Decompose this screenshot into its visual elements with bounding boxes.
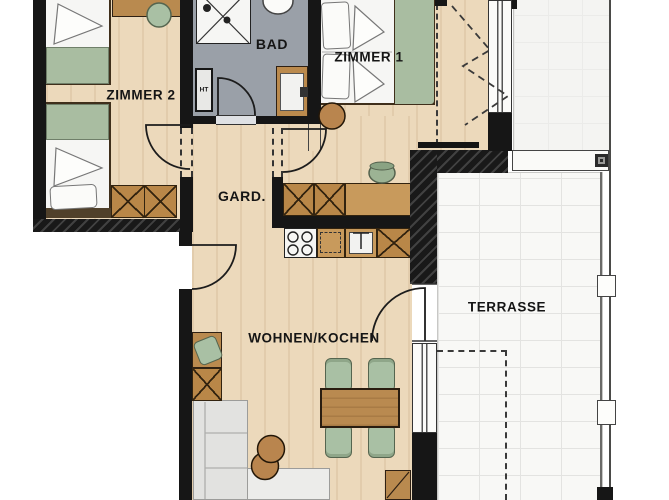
room-label-wohnen-kochen: WOHNEN/KOCHEN	[248, 331, 380, 346]
lowboard-diagonal	[387, 472, 409, 498]
label-ht-shaft: HT	[200, 87, 209, 94]
entry-door-swing	[192, 245, 236, 289]
zimmer1-stool	[319, 103, 345, 129]
bath-faucet-icon	[300, 87, 308, 97]
sofa-seams	[205, 402, 247, 499]
bath-door-swing	[218, 78, 255, 115]
shower-icon	[197, 0, 249, 43]
zimmer1-sliding-door	[418, 142, 479, 148]
stove-burners-icon	[288, 232, 312, 255]
room-label-zimmer2: ZIMMER 2	[106, 88, 175, 103]
plant-icon	[369, 162, 395, 183]
bed-fold-corners	[54, 4, 384, 186]
room-label-terrasse: TERRASSE	[468, 300, 546, 315]
room-label-zimmer1: ZIMMER 1	[334, 50, 403, 65]
zimmer2-desk-chair	[147, 3, 171, 27]
terrace-door-swing	[372, 288, 425, 341]
detail-overlay	[0, 0, 669, 500]
pouf	[258, 436, 285, 463]
kitchen-faucet-icon	[353, 233, 369, 249]
room-label-bad: BAD	[256, 36, 288, 52]
room-label-gard: GARD.	[218, 188, 266, 204]
window-opening-dashes	[452, 6, 508, 125]
toilet-icon	[263, 0, 293, 14]
zimmer2-door-swing	[146, 125, 190, 169]
gard-door-swing	[283, 129, 326, 172]
floor-plan: ZIMMER 2 BAD ZIMMER 1 GARD. WOHNEN/KOCHE…	[0, 0, 669, 500]
